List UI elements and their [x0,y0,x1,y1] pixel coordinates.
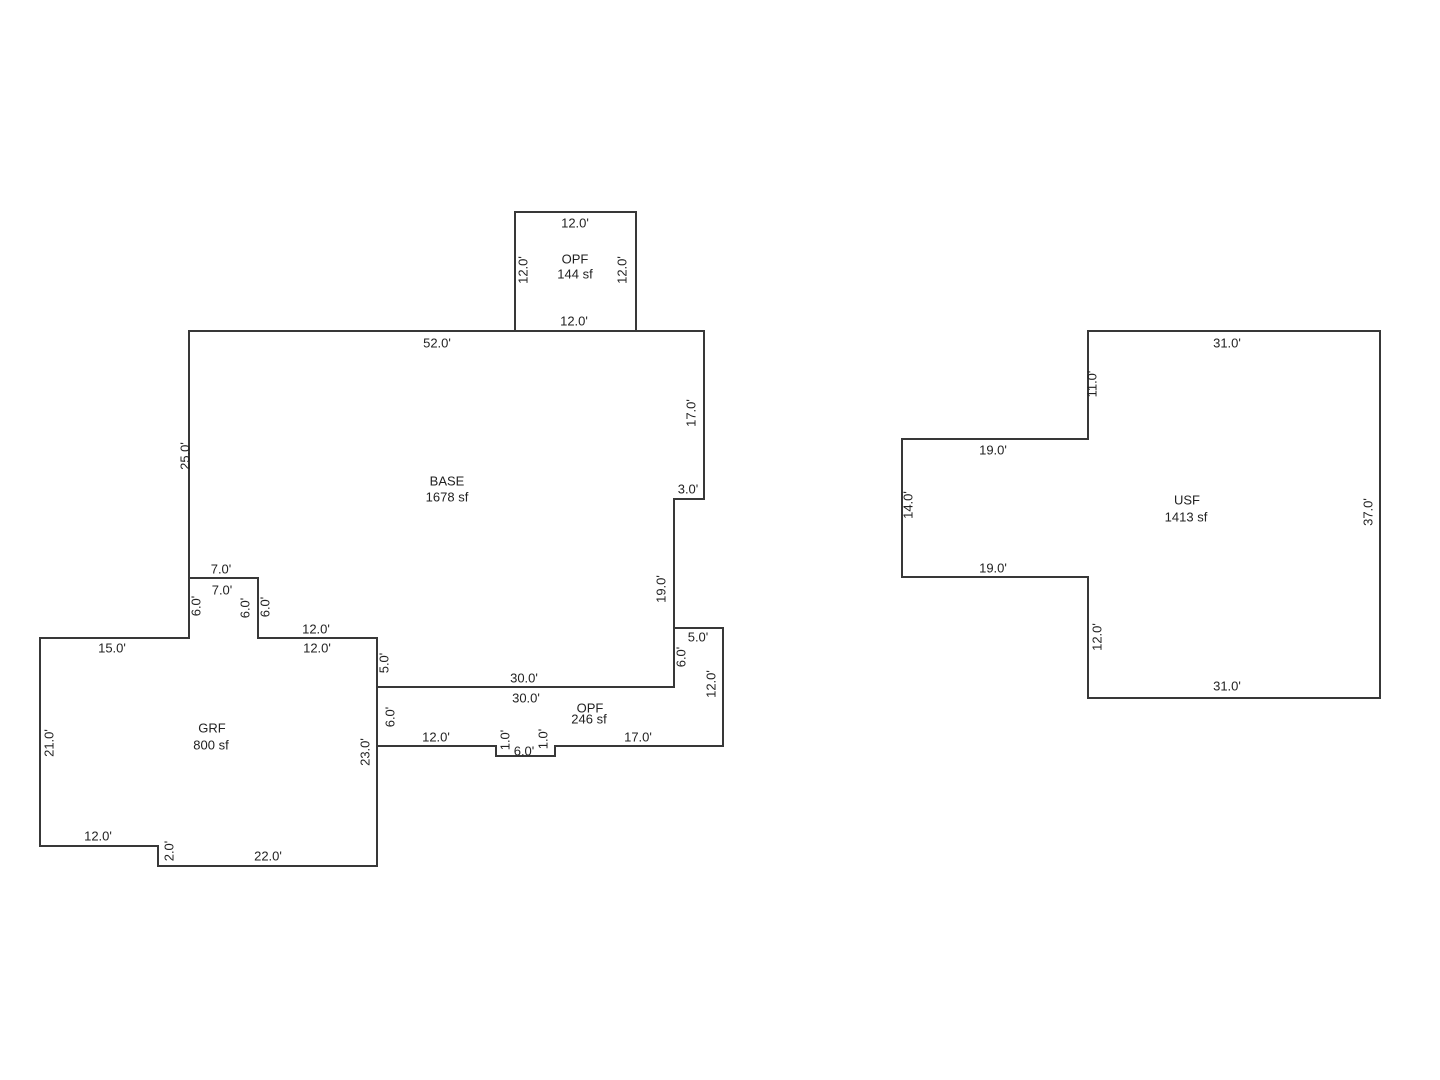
dim-label: 25.0' [178,442,193,470]
dim-label: 12.0' [704,670,719,698]
dim-label: 12.0' [516,256,531,284]
dim-label: 7.0' [211,562,232,577]
dim-label: 12.0' [422,730,450,745]
dim-label: 12.0' [615,256,630,284]
area-sf-opf-lower: 246 sf [571,712,607,727]
dim-label: 22.0' [254,849,282,864]
dim-label: 3.0' [678,482,699,497]
dim-label: 7.0' [212,583,233,598]
dim-label: 5.0' [688,630,709,645]
area-name-base: BASE [430,474,465,489]
dim-label: 14.0' [901,491,916,519]
area-sf-base: 1678 sf [426,490,469,505]
sketch-page: OPF144 sf12.0'12.0'12.0'12.0'BASE1678 sf… [0,0,1440,1080]
dim-label: 19.0' [979,561,1007,576]
dim-label: 6.0' [383,707,398,728]
dim-label: 5.0' [377,653,392,674]
area-name-opf-upper: OPF [562,252,589,267]
area-outline-usf [902,331,1380,698]
dim-label: 12.0' [84,829,112,844]
dim-label: 21.0' [42,729,57,757]
dim-label: 12.0' [303,641,331,656]
dim-label: 15.0' [98,641,126,656]
area-sf-grf: 800 sf [193,738,229,753]
dim-label: 1.0' [498,730,513,751]
dim-label: 2.0' [162,841,177,862]
dim-label: 6.0' [238,598,253,619]
dim-label: 17.0' [684,399,699,427]
dim-label: 23.0' [358,738,373,766]
area-outline-base [189,331,704,687]
dim-label: 30.0' [512,691,540,706]
dim-label: 6.0' [514,744,535,759]
area-sf-usf: 1413 sf [1165,510,1208,525]
dim-label: 19.0' [979,443,1007,458]
dim-label: 37.0' [1361,498,1376,526]
dim-label: 11.0' [1085,371,1100,398]
dim-label: 19.0' [654,575,669,603]
dim-label: 12.0' [1090,623,1105,651]
dim-label: 6.0' [189,596,204,617]
dim-label: 17.0' [624,730,652,745]
dim-label: 6.0' [258,597,273,618]
area-name-grf: GRF [198,721,226,736]
dim-label: 30.0' [510,671,538,686]
sketch-canvas: OPF144 sf12.0'12.0'12.0'12.0'BASE1678 sf… [0,0,1440,1080]
dim-label: 12.0' [561,216,589,231]
area-sf-opf-upper: 144 sf [557,267,593,282]
area-name-usf: USF [1174,493,1200,508]
dim-label: 6.0' [674,647,689,668]
dim-label: 52.0' [423,336,451,351]
dim-label: 31.0' [1213,336,1241,351]
dim-label: 12.0' [560,314,588,329]
dim-label: 31.0' [1213,679,1241,694]
dim-label: 1.0' [536,729,551,750]
dim-label: 12.0' [302,622,330,637]
